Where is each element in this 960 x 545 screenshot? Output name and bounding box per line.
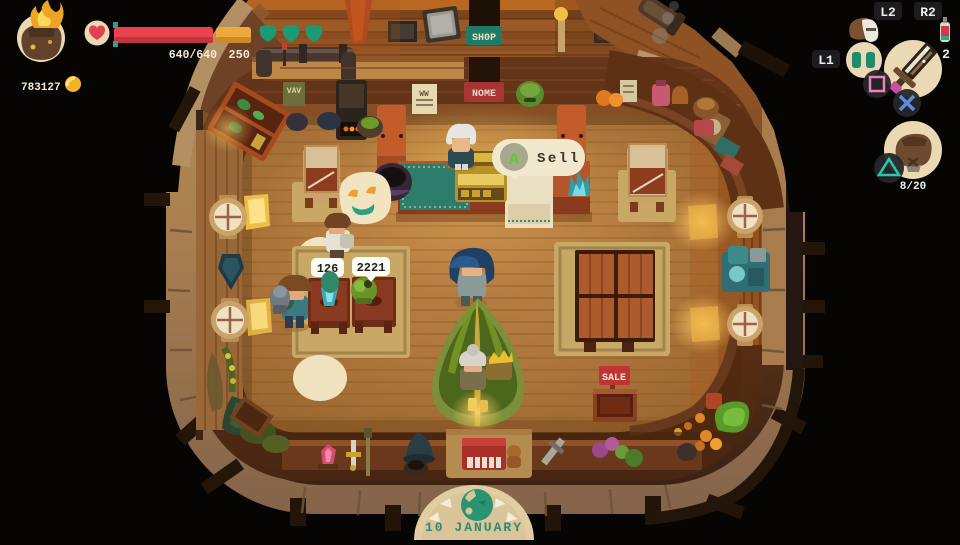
svg-text:8/20: 8/20 <box>900 181 926 193</box>
svg-text:NOME: NOME <box>472 89 496 100</box>
svg-text:WW: WW <box>419 90 429 99</box>
svg-text:L1: L1 <box>818 53 834 68</box>
svg-text:VAV: VAV <box>287 87 302 96</box>
svg-text:250: 250 <box>228 48 250 62</box>
svg-text:783127: 783127 <box>21 82 61 94</box>
svg-text:2: 2 <box>942 47 950 62</box>
svg-text:Sell: Sell <box>537 151 581 167</box>
svg-text:R2: R2 <box>920 5 936 20</box>
svg-text:A: A <box>509 151 520 170</box>
svg-text:10 JANUARY: 10 JANUARY <box>425 520 523 535</box>
svg-text:SH0P: SH0P <box>472 33 496 44</box>
svg-text:SALE: SALE <box>602 373 626 384</box>
svg-text:640/640: 640/640 <box>169 49 217 62</box>
svg-text:2221: 2221 <box>357 261 386 275</box>
svg-text:L2: L2 <box>880 5 896 20</box>
